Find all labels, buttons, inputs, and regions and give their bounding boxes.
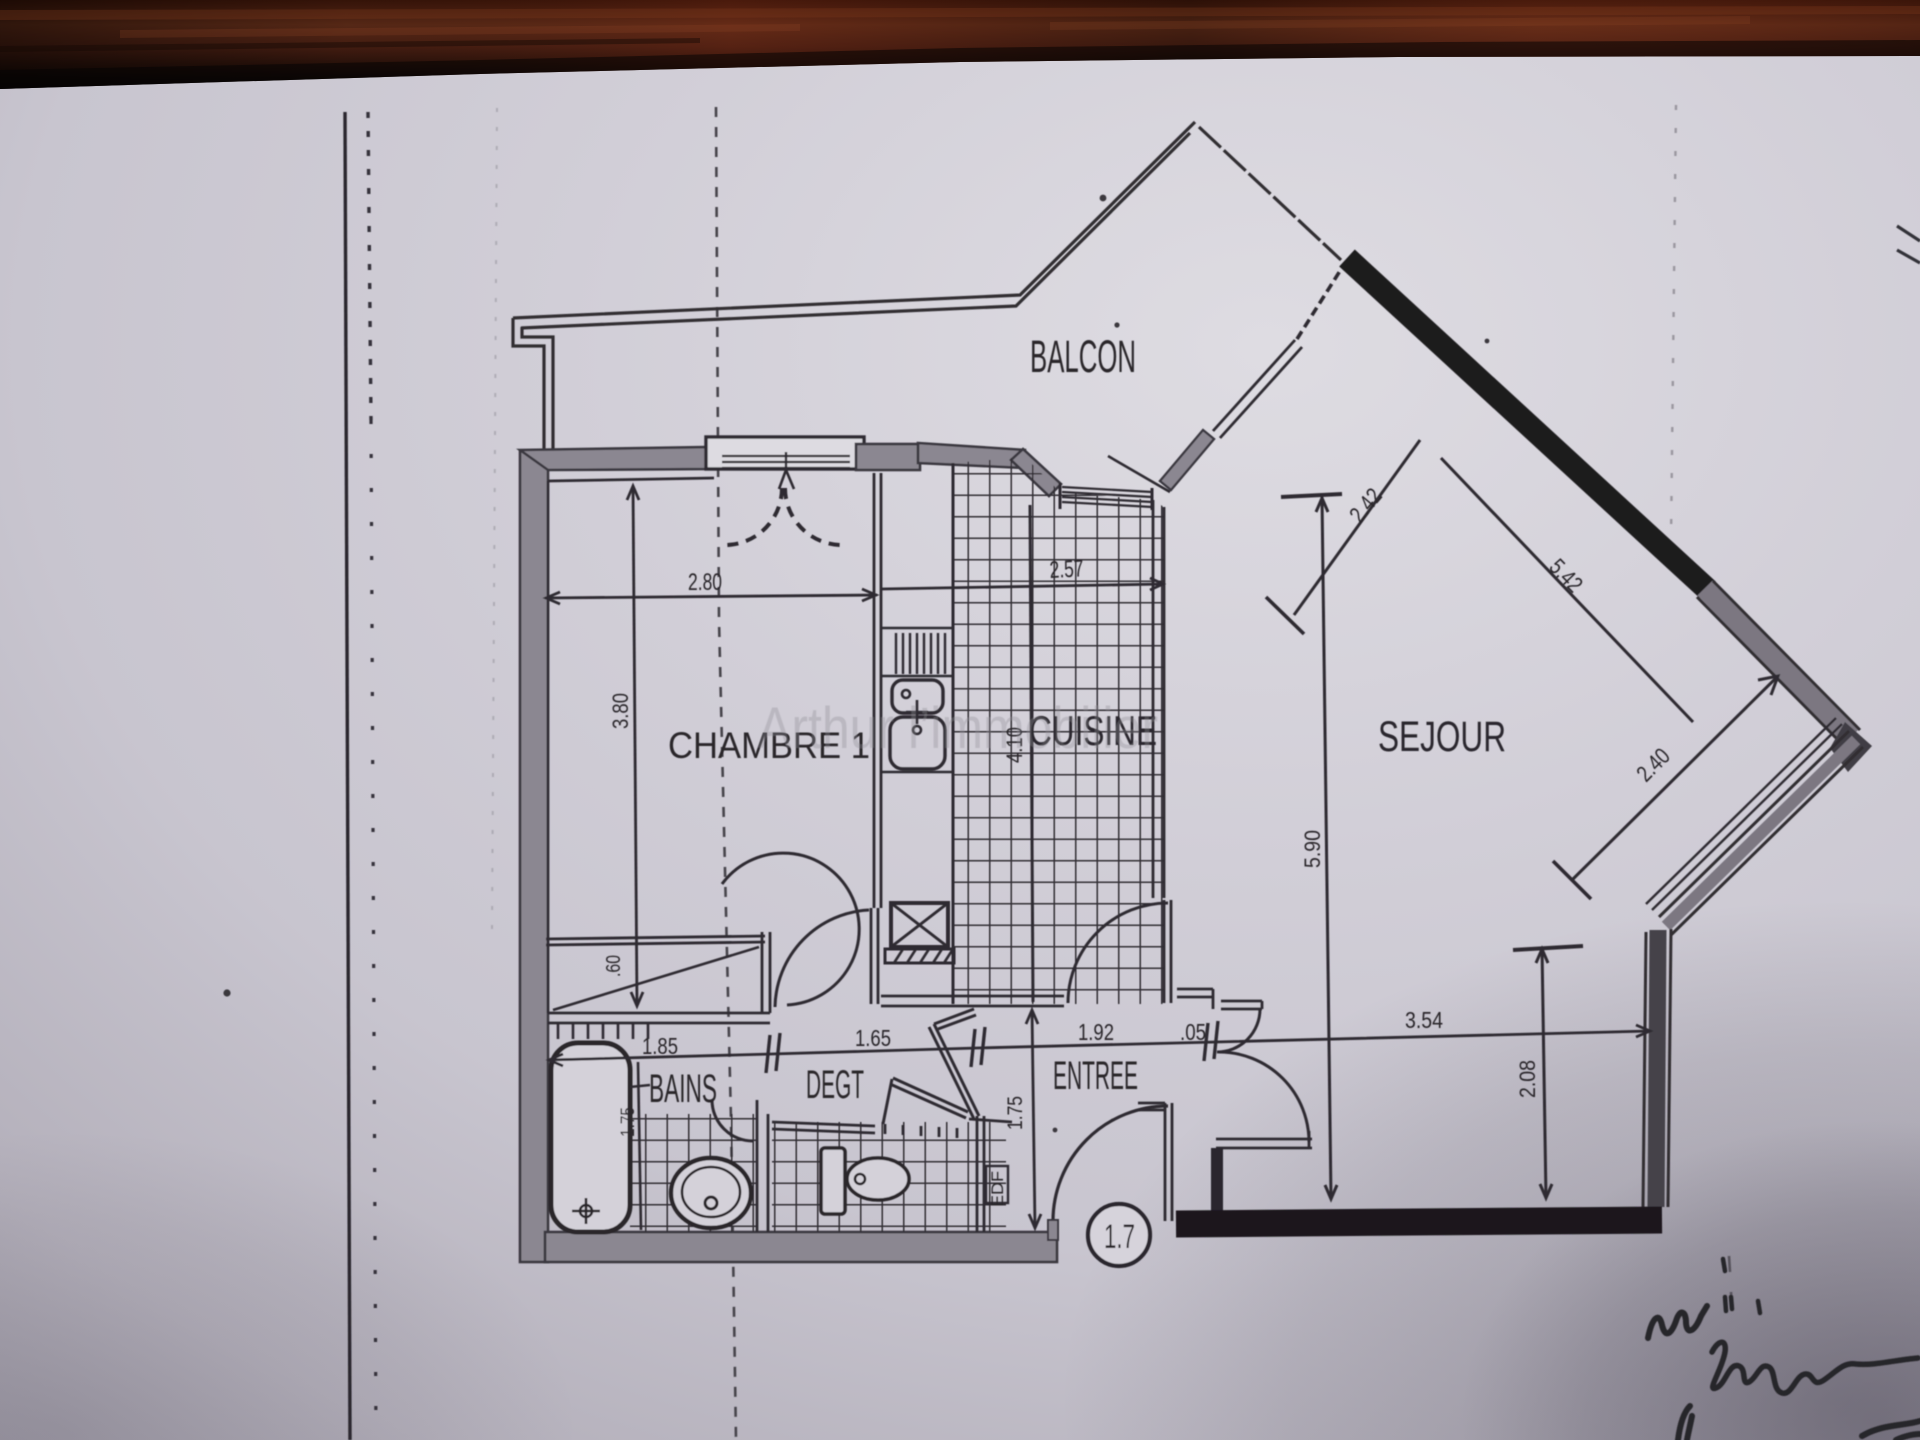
svg-text:1.75: 1.75 [618,1107,639,1137]
svg-text:1.7: 1.7 [1104,1218,1135,1256]
svg-text:SEJOUR: SEJOUR [1378,713,1506,761]
svg-text:Arthur l’immobilier: Arthur l’immobilier [758,696,1158,761]
svg-text:BAINS: BAINS [649,1067,717,1111]
svg-text:2.80: 2.80 [688,569,722,596]
svg-text:1.75: 1.75 [1004,1096,1027,1130]
svg-text:ENTREE: ENTREE [1053,1054,1138,1098]
svg-text:1.65: 1.65 [855,1025,891,1051]
svg-text:1.85: 1.85 [642,1033,678,1059]
svg-text:DEGT: DEGT [806,1063,864,1107]
svg-text:2.57: 2.57 [1049,555,1084,584]
svg-text:BALCON: BALCON [1030,331,1136,382]
svg-text:EDF: EDF [988,1171,1007,1207]
svg-text:.60: .60 [603,955,625,977]
svg-text:1.92: 1.92 [1078,1019,1114,1045]
svg-text:3.80: 3.80 [608,693,633,729]
svg-text:2.08: 2.08 [1515,1060,1540,1098]
svg-text:3.54: 3.54 [1405,1007,1443,1033]
svg-text:5.90: 5.90 [1300,830,1325,868]
svg-text:.05: .05 [1180,1019,1206,1045]
